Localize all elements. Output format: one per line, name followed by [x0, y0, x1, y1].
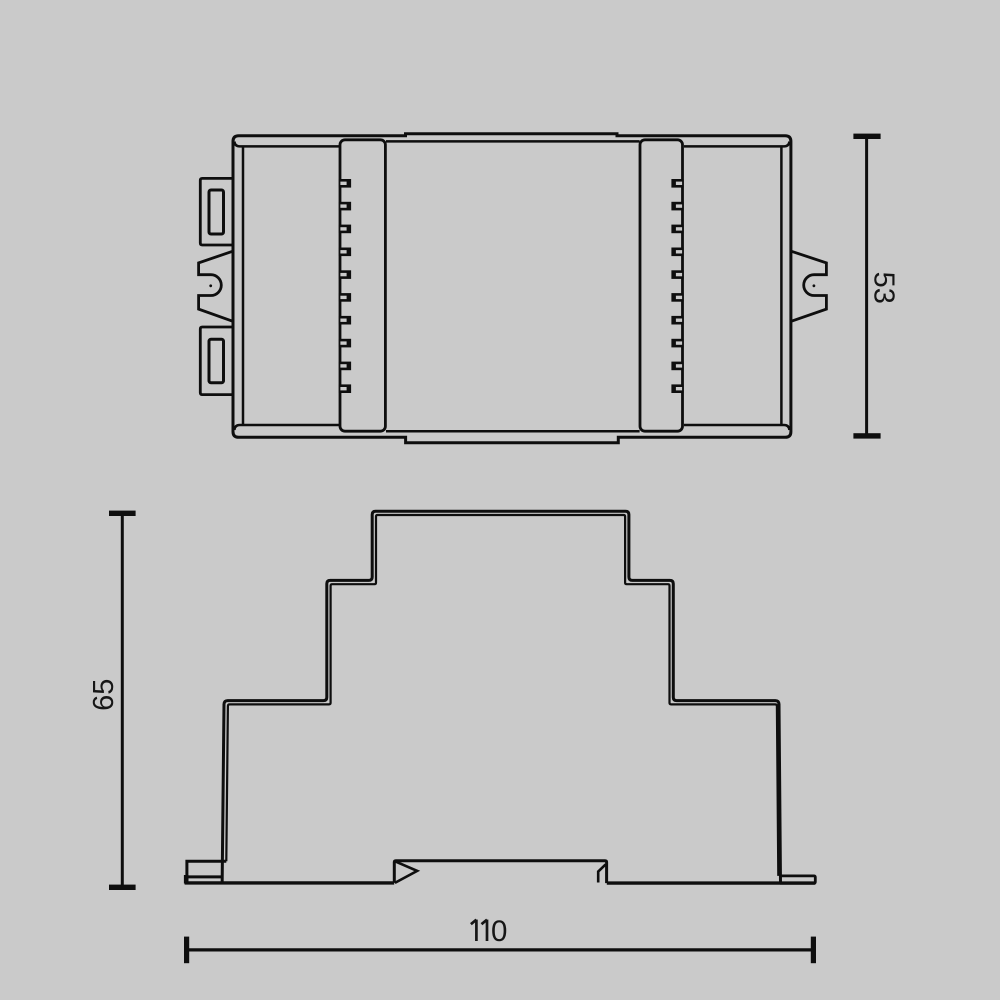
svg-text:65: 65	[88, 679, 120, 711]
svg-text:53: 53	[868, 272, 900, 304]
svg-text:0: 0	[491, 915, 507, 948]
